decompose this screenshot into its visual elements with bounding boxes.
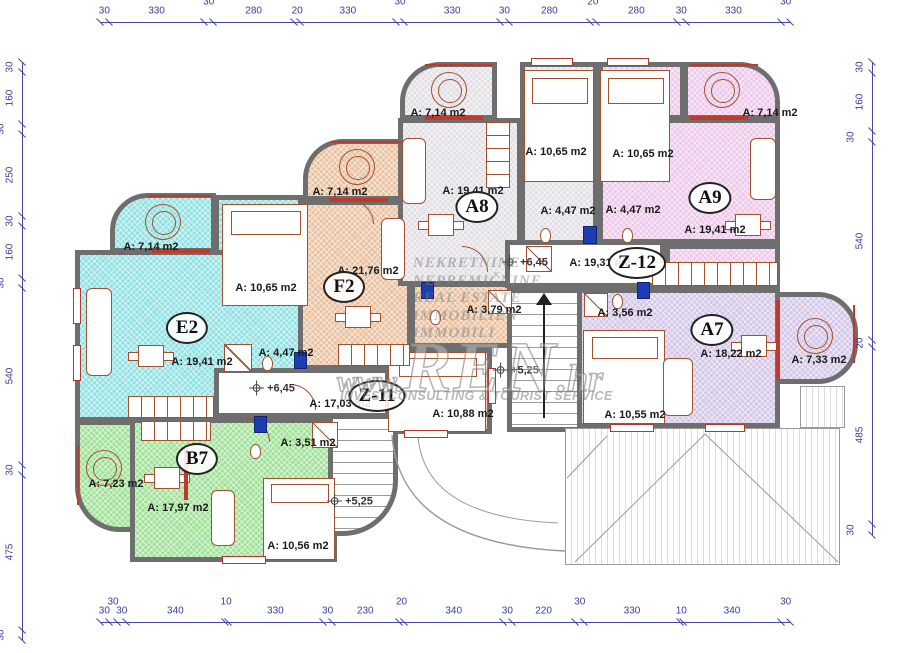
dimension-value: 30 [499, 6, 510, 17]
dimension-value: 30 [0, 124, 7, 135]
stair-arrow-line [543, 300, 545, 418]
room-area-label: A: 17,97 m2 [147, 502, 208, 514]
dimension-value: 160 [855, 94, 866, 111]
dimension-value: 340 [445, 606, 462, 617]
balcony-rail-a8 [425, 64, 493, 66]
apartment-id-a9: A9 [688, 182, 731, 214]
dining-table-icon [138, 345, 164, 367]
boiler-icon [421, 282, 434, 299]
dimension-value: 280 [245, 6, 262, 17]
level-symbol-icon [249, 381, 264, 396]
toilet-icon [250, 444, 261, 459]
floor-plan: NEKRETNINE NEPREMIČNINE REAL ESTATE IMMO… [0, 0, 900, 653]
apartment-id-e2: E2 [166, 312, 208, 344]
apartment-id-z-12: Z-12 [608, 247, 666, 279]
room-area-label: A: 4,47 m2 [540, 205, 595, 217]
balcony-door-a7 [776, 300, 780, 380]
dimension-value: 30 [780, 0, 791, 8]
dining-table-icon [345, 306, 371, 328]
dimension-value: 30 [780, 597, 791, 608]
room-area-label: A: 4,47 m2 [258, 347, 313, 359]
dimension-value: 20 [855, 338, 866, 349]
room-area-label: A: 4,47 m2 [605, 204, 660, 216]
level-symbol-icon [502, 255, 517, 270]
dimension-value: 160 [5, 90, 16, 107]
room-area-label: A: 7,14 m2 [410, 107, 465, 119]
dimension-value: 330 [444, 6, 461, 17]
room-area-label: A: 10,88 m2 [432, 408, 493, 420]
dimension-chain-bottom [100, 622, 790, 623]
roof-strip-right [800, 386, 845, 428]
room-area-label: A: 10,65 m2 [612, 148, 673, 160]
kitchen-counter-icon [652, 262, 778, 286]
dimension-value: 30 [0, 630, 7, 641]
dining-table-icon [428, 214, 454, 236]
room-area-label: A: 7,14 m2 [123, 241, 178, 253]
toilet-icon [622, 228, 633, 243]
room-area-label: A: 7,23 m2 [88, 478, 143, 490]
level-value: +6,45 [267, 382, 295, 394]
dimension-value: 330 [148, 6, 165, 17]
window-a8-bedroom [531, 58, 573, 66]
sofa-icon [402, 138, 426, 204]
balcony-rail-b7 [77, 445, 79, 505]
balcony-rail-a7 [853, 305, 855, 363]
level-marker: +6,45 [249, 381, 295, 396]
dimension-value: 30 [116, 606, 127, 617]
balcony-door-f2 [330, 198, 388, 202]
room-area-label: A: 10,55 m2 [604, 409, 665, 421]
balcony-rail-f2 [330, 141, 402, 143]
dimension-value: 30 [846, 131, 857, 142]
dimension-value: 540 [5, 368, 16, 385]
dimension-value: 280 [628, 6, 645, 17]
room-area-label: A: 7,14 m2 [742, 107, 797, 119]
kitchen-counter-icon [338, 344, 410, 366]
level-marker: +6,45 [502, 255, 548, 270]
bed-icon [524, 70, 594, 182]
dimension-value: 20 [587, 0, 598, 8]
bed-icon [600, 70, 670, 182]
window-a7-bottom-1 [610, 424, 654, 432]
sofa-icon [750, 138, 776, 200]
room-area-label: A: 3,79 m2 [466, 304, 521, 316]
level-marker: +5,25 [493, 363, 539, 378]
window-e2-left-1 [73, 288, 81, 324]
room-area-label: A: 18,22 m2 [700, 348, 761, 360]
dimension-value: 330 [725, 6, 742, 17]
stair-arrow-head [536, 293, 552, 305]
dimension-value: 540 [855, 233, 866, 250]
dimension-value: 30 [395, 0, 406, 8]
round-table-icon [431, 72, 467, 108]
dimension-value: 10 [676, 606, 687, 617]
dimension-value: 30 [846, 524, 857, 535]
dimension-value: 485 [855, 427, 866, 444]
room-area-label: A: 7,33 m2 [791, 354, 846, 366]
apartment-id-b7: B7 [176, 443, 218, 475]
sofa-icon [211, 490, 235, 546]
sofa-icon [663, 358, 693, 416]
room-area-label: A: 19,41 m2 [684, 224, 745, 236]
balcony-rail-a9 [690, 64, 758, 66]
boiler-icon [637, 282, 650, 299]
toilet-icon [430, 310, 441, 325]
room-area-label: A: 10,65 m2 [235, 282, 296, 294]
apartment-id-z-11: Z-11 [349, 380, 406, 412]
dimension-value: 340 [167, 606, 184, 617]
dining-table-icon [154, 467, 180, 489]
dimension-value: 280 [541, 6, 558, 17]
level-value: +5,25 [345, 495, 373, 507]
boiler-icon [583, 226, 597, 244]
dimension-value: 220 [535, 606, 552, 617]
dimension-value: 250 [5, 167, 16, 184]
dimension-value: 30 [99, 6, 110, 17]
window-b7-bottom [222, 556, 266, 564]
dimension-value: 340 [724, 606, 741, 617]
toilet-icon [540, 228, 551, 243]
kitchen-counter-icon [128, 396, 214, 418]
dimension-value: 30 [5, 215, 16, 226]
apartment-id-f2: F2 [323, 271, 365, 303]
boiler-icon [254, 416, 267, 433]
dimension-value: 10 [221, 597, 232, 608]
dimension-value: 30 [322, 606, 333, 617]
room-area-label: A: 10,65 m2 [525, 146, 586, 158]
dimension-value: 475 [5, 544, 16, 561]
level-value: +5,25 [511, 364, 539, 376]
apartment-id-a8: A8 [455, 191, 498, 223]
balcony-door-a9 [690, 116, 748, 120]
dimension-chain-left [22, 62, 23, 640]
dimension-value: 30 [203, 0, 214, 8]
dimension-value: 30 [5, 61, 16, 72]
dimension-value: 330 [340, 6, 357, 17]
dimension-value: 20 [292, 6, 303, 17]
level-value: +6,45 [520, 256, 548, 268]
dimension-value: 30 [5, 464, 16, 475]
dimension-value: 30 [502, 606, 513, 617]
dimension-value: 330 [267, 606, 284, 617]
dimension-value: 230 [357, 606, 374, 617]
level-marker: +5,25 [327, 494, 373, 509]
apartment-id-a7: A7 [690, 314, 733, 346]
dimension-value: 160 [5, 244, 16, 261]
kitchen-counter-icon [486, 122, 510, 188]
dimension-value: 330 [624, 606, 641, 617]
room-area-label: A: 3,51 m2 [280, 437, 335, 449]
room-area-label: A: 10,56 m2 [267, 540, 328, 552]
round-table-icon [704, 72, 740, 108]
dimension-value: 30 [855, 62, 866, 73]
level-symbol-icon [493, 363, 508, 378]
round-table-icon [339, 149, 375, 185]
kitchen-counter-icon [141, 421, 211, 441]
window-a7-bottom-2 [705, 424, 745, 432]
window-e2-left-2 [73, 345, 81, 381]
room-area-label: A: 3,56 m2 [597, 307, 652, 319]
room-area-label: A: 7,14 m2 [312, 186, 367, 198]
window-a9-bedroom [607, 58, 649, 66]
dimension-value: 30 [0, 277, 7, 288]
dimension-value: 30 [574, 597, 585, 608]
dimension-value: 30 [676, 6, 687, 17]
roof-hip-lines [565, 428, 840, 565]
balcony-rail-e2 [148, 195, 212, 197]
round-table-icon [145, 204, 181, 240]
window-f2-bedroom-bottom [404, 430, 448, 438]
round-table-icon [797, 318, 833, 354]
sofa-icon [86, 288, 112, 376]
dimension-value: 20 [396, 597, 407, 608]
level-symbol-icon [327, 494, 342, 509]
room-area-label: A: 19,41 m2 [171, 356, 232, 368]
